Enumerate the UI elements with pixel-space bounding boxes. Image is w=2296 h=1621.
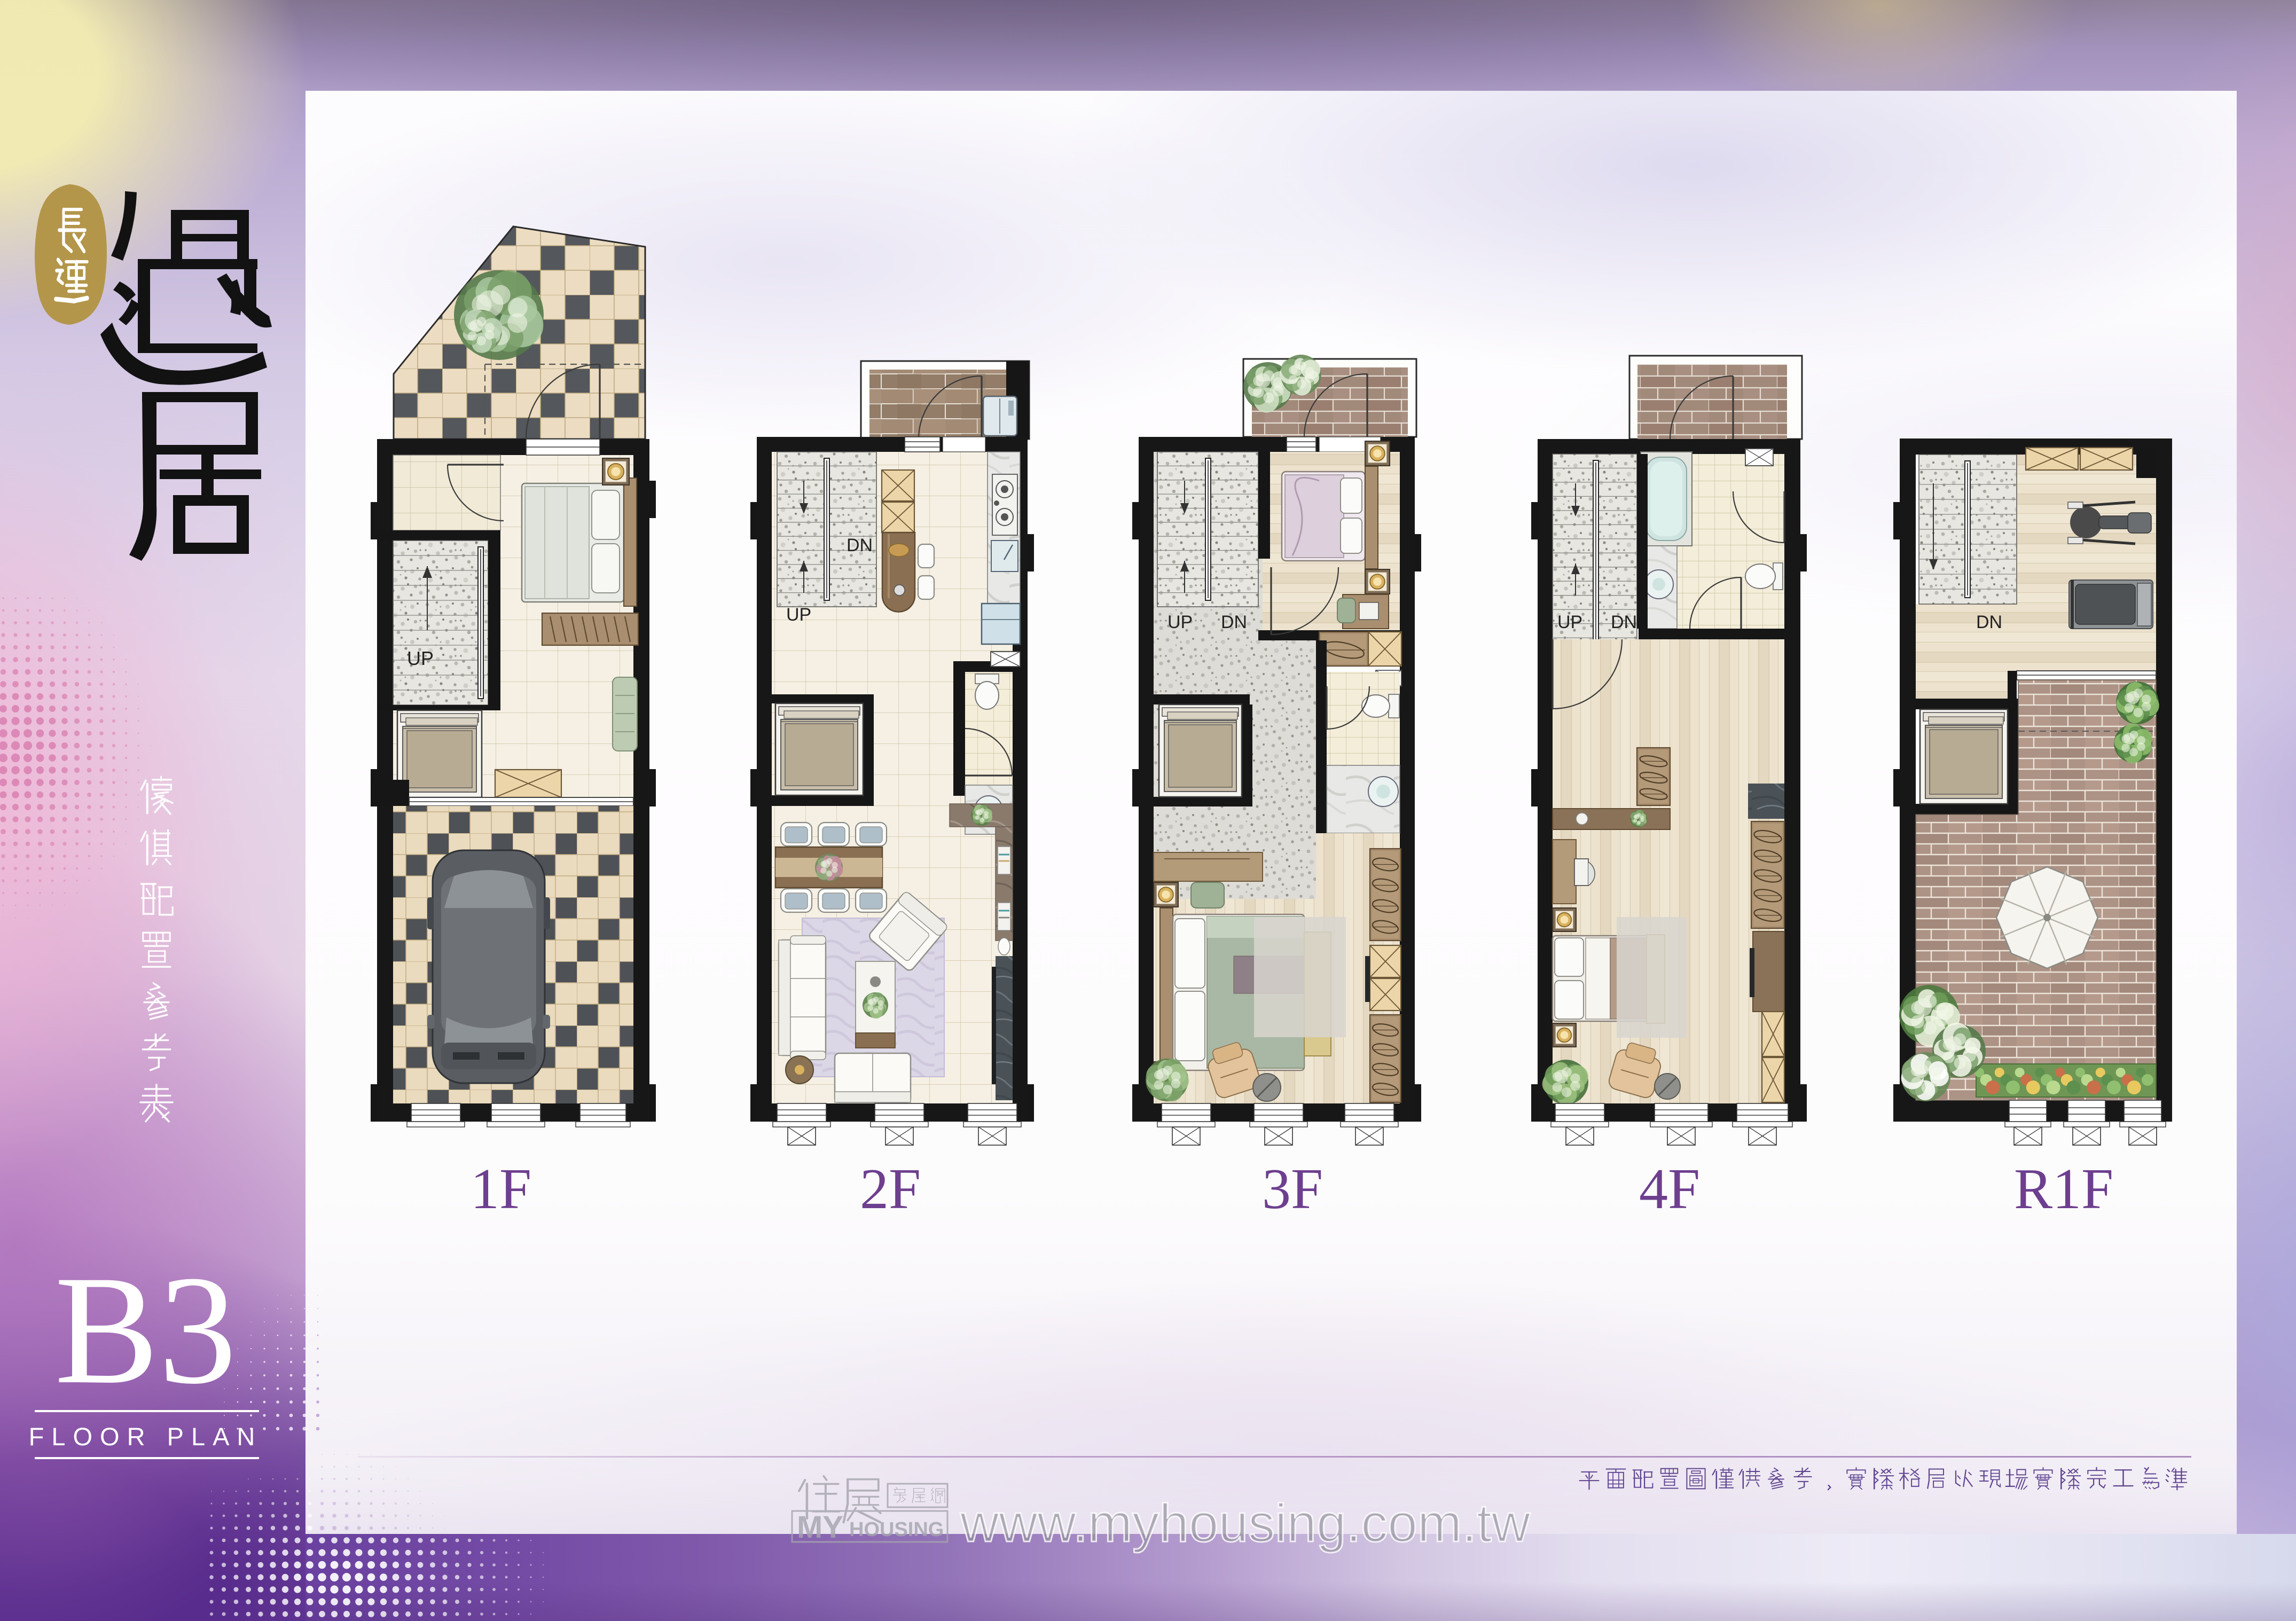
svg-text:3F: 3F [1262, 1157, 1323, 1221]
svg-text:DN: DN [847, 535, 873, 555]
svg-text:UP: UP [786, 605, 811, 625]
svg-text:DN: DN [1611, 612, 1637, 632]
svg-text:UP: UP [1557, 612, 1582, 632]
svg-text:UP: UP [407, 647, 434, 669]
svg-text:4F: 4F [1639, 1157, 1700, 1221]
svg-text:UP: UP [1167, 612, 1193, 632]
svg-text:MY: MY [797, 1510, 843, 1545]
svg-text:2F: 2F [860, 1157, 921, 1221]
svg-text:1F: 1F [471, 1157, 531, 1221]
svg-text:DN: DN [1221, 612, 1247, 632]
svg-text:HOUSING: HOUSING [849, 1518, 944, 1541]
svg-text:R1F: R1F [2014, 1157, 2113, 1221]
svg-text:DN: DN [1976, 612, 2002, 632]
